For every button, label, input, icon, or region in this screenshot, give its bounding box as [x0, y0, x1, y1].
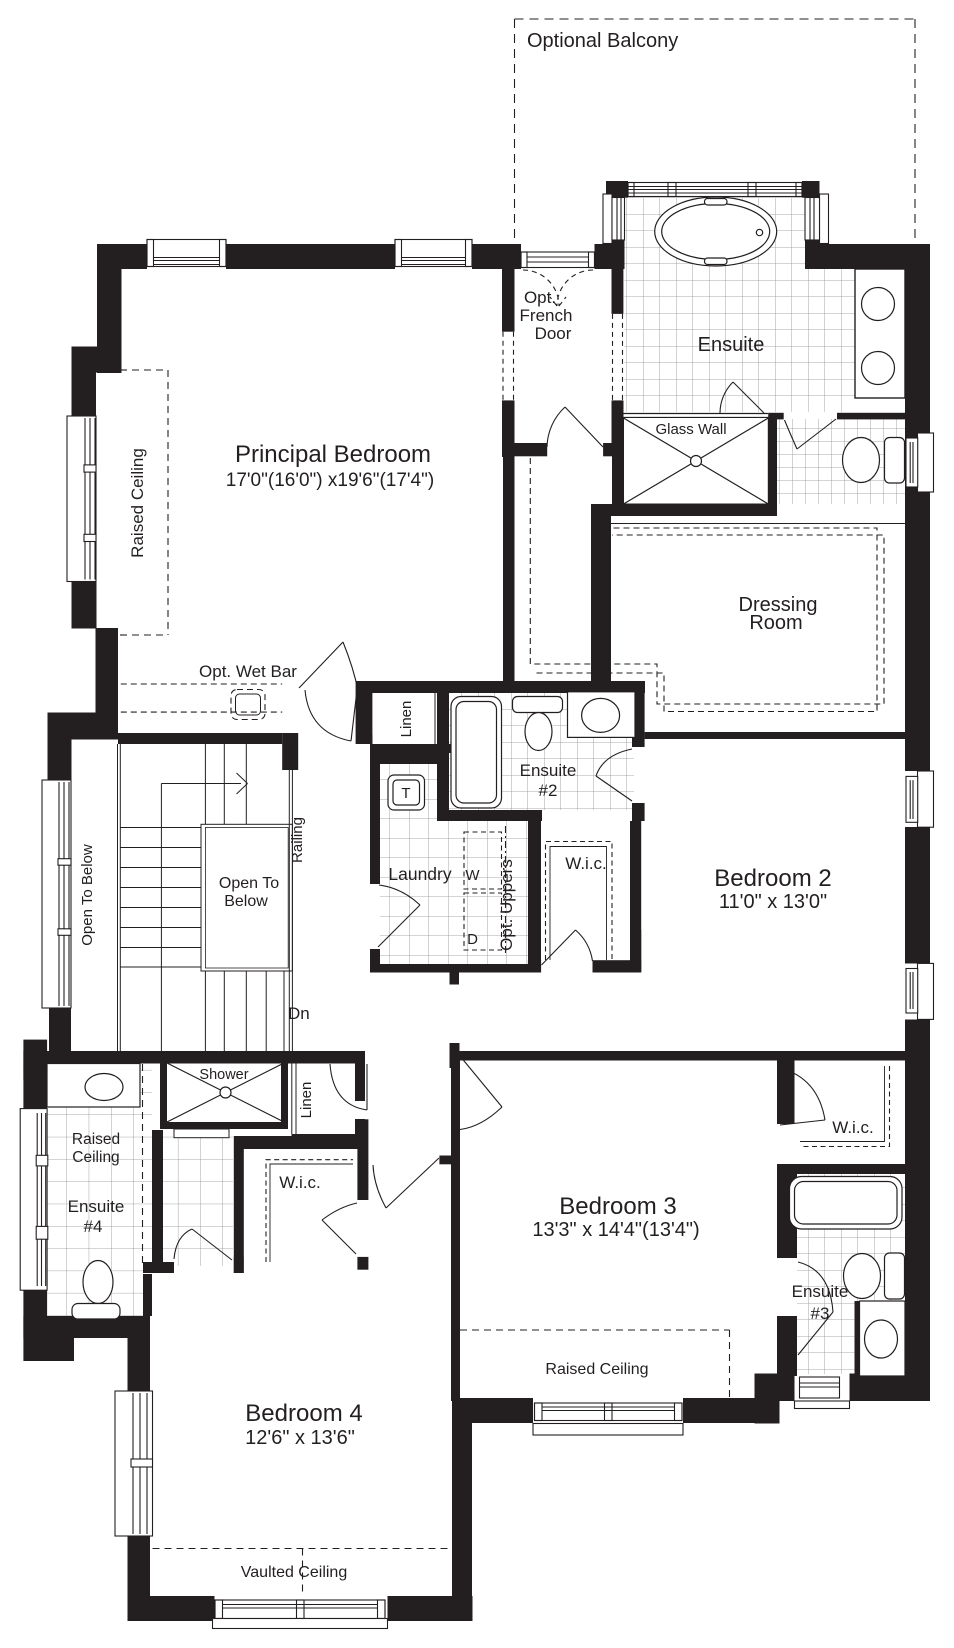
svg-text:Raised Ceiling: Raised Ceiling — [545, 1361, 648, 1378]
svg-text:13'3" x 14'4"(13'4"): 13'3" x 14'4"(13'4") — [532, 1219, 699, 1241]
svg-text:Below: Below — [224, 893, 268, 910]
svg-text:Dn: Dn — [288, 1004, 310, 1023]
svg-text:Ceiling: Ceiling — [72, 1149, 119, 1166]
svg-text:T: T — [401, 785, 410, 802]
svg-text:Raised Ceiling: Raised Ceiling — [128, 448, 147, 558]
svg-text:Ensuite: Ensuite — [698, 334, 765, 356]
svg-text:Door: Door — [535, 324, 572, 343]
svg-text:Opt.: Opt. — [524, 288, 556, 307]
svg-text:Vaulted Ceiling: Vaulted Ceiling — [241, 1564, 347, 1581]
svg-text:W.i.c.: W.i.c. — [279, 1173, 321, 1192]
svg-text:Railing: Railing — [289, 817, 306, 863]
svg-text:W: W — [465, 867, 480, 884]
svg-text:Room: Room — [749, 612, 802, 634]
svg-text:Open To: Open To — [219, 875, 279, 892]
svg-text:11'0" x 13'0": 11'0" x 13'0" — [719, 891, 827, 913]
svg-text:W.i.c.: W.i.c. — [832, 1118, 874, 1137]
svg-text:W.i.c.: W.i.c. — [565, 854, 607, 873]
svg-text:D: D — [467, 931, 478, 948]
svg-text:12'6" x 13'6": 12'6" x 13'6" — [245, 1427, 355, 1449]
svg-text:Principal Bedroom: Principal Bedroom — [235, 441, 431, 468]
svg-text:Raised: Raised — [72, 1131, 120, 1148]
svg-text:Open To Below: Open To Below — [79, 844, 96, 946]
svg-text:French: French — [520, 306, 573, 325]
svg-text:Bedroom 4: Bedroom 4 — [245, 1400, 362, 1427]
svg-text:Bedroom 3: Bedroom 3 — [559, 1193, 676, 1220]
svg-text:Optional Balcony: Optional Balcony — [527, 30, 678, 52]
svg-text:#2: #2 — [539, 781, 558, 800]
svg-text:17'0"(16'0") x19'6"(17'4"): 17'0"(16'0") x19'6"(17'4") — [226, 470, 434, 491]
svg-text:Ensuite: Ensuite — [520, 761, 577, 780]
svg-text:#3: #3 — [811, 1304, 830, 1323]
svg-text:Opt. Wet Bar: Opt. Wet Bar — [199, 662, 297, 681]
svg-text:Laundry: Laundry — [388, 864, 451, 884]
svg-text:Ensuite: Ensuite — [792, 1282, 849, 1301]
svg-text:Ensuite: Ensuite — [68, 1197, 125, 1216]
svg-text:#4: #4 — [84, 1217, 103, 1236]
svg-text:Shower: Shower — [199, 1067, 248, 1083]
svg-text:Glass Wall: Glass Wall — [655, 421, 726, 438]
svg-text:Bedroom 2: Bedroom 2 — [714, 865, 831, 892]
svg-text:Linen: Linen — [398, 701, 415, 738]
svg-text:Linen: Linen — [298, 1082, 315, 1119]
svg-text:Opt. Uppers: Opt. Uppers — [497, 859, 516, 951]
